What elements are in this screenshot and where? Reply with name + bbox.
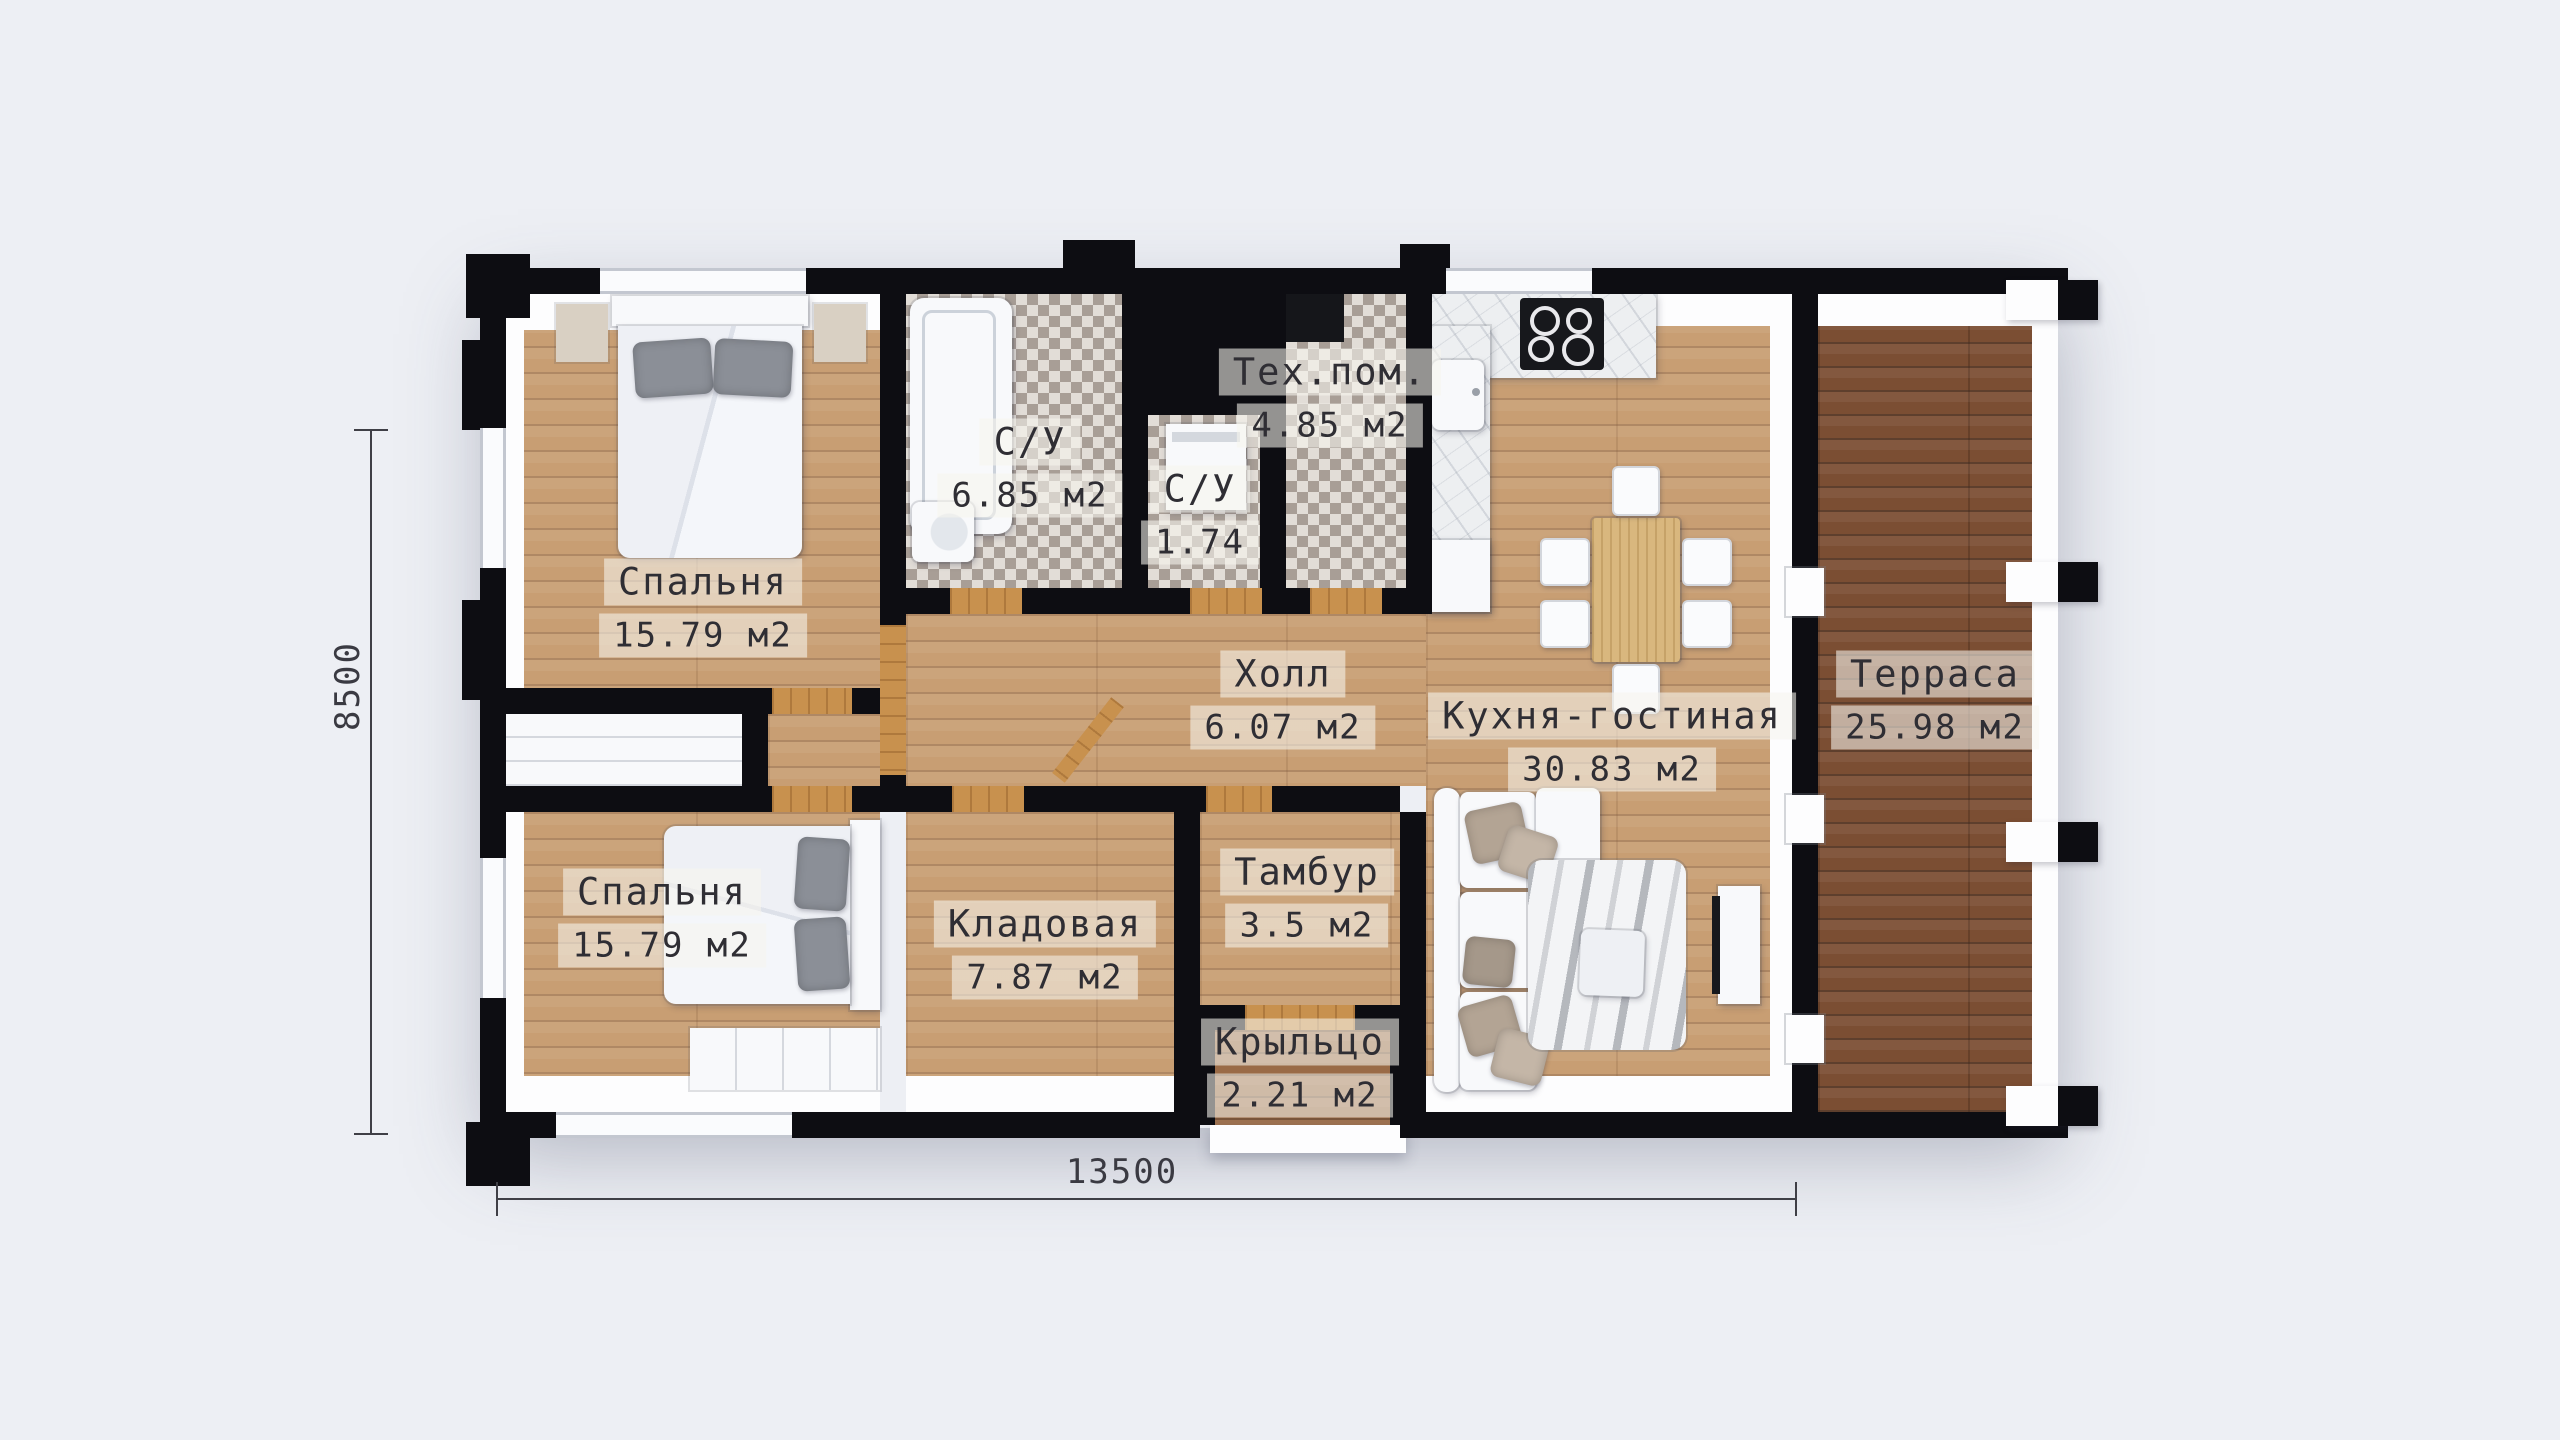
wall-bath-belt xyxy=(906,588,950,614)
door-vestibule xyxy=(1206,786,1272,812)
wall-wardrobe-stub xyxy=(742,714,768,786)
bed-1-pillow-left xyxy=(632,337,714,398)
room-area: 30.83 м2 xyxy=(1508,748,1716,792)
door-bedroom-2 xyxy=(772,786,852,812)
room-name: Тамбур xyxy=(1220,849,1394,896)
bedroom-1-left-wall-face xyxy=(506,330,524,688)
wardrobe xyxy=(506,714,742,786)
room-label-tech-room: Тех.пом. 4.85 м2 xyxy=(1219,349,1441,448)
dining-chair xyxy=(1540,538,1590,586)
room-area: 15.79 м2 xyxy=(558,924,766,968)
burner-icon xyxy=(1566,308,1592,334)
glass-door-living-terrace xyxy=(1786,1015,1824,1063)
door-tech-room xyxy=(1310,588,1382,614)
window-kitchen-top xyxy=(1446,268,1592,294)
glass-door-living-terrace xyxy=(1786,795,1824,843)
corner-block-top-left xyxy=(466,254,530,318)
room-name: Холл xyxy=(1220,651,1345,698)
bed-1 xyxy=(612,296,808,562)
room-area: 3.5 м2 xyxy=(1226,904,1389,948)
faucet-icon xyxy=(1472,388,1480,396)
room-label-hall: Холл 6.07 м2 xyxy=(1190,651,1375,750)
door-bathroom-2 xyxy=(1190,588,1262,614)
dimension-line-horizontal xyxy=(497,1198,1797,1200)
left-pilaster xyxy=(462,600,480,700)
cooktop xyxy=(1520,298,1604,370)
room-label-bedroom-1: Спальня 15.79 м2 xyxy=(599,559,807,658)
terrace-pillar-cap xyxy=(2058,562,2098,602)
dimension-tick xyxy=(496,1182,498,1216)
door-bathroom-1 xyxy=(950,588,1022,614)
room-name: Кухня-гостиная xyxy=(1428,693,1796,740)
room-label-bathroom-1: С/У 6.85 м2 xyxy=(937,419,1122,518)
dimension-line-vertical xyxy=(370,430,372,1135)
floor-plan-canvas: Спальня 15.79 м2 С/У 6.85 м2 С/У 1.74 Те… xyxy=(0,0,2560,1440)
dining-chair xyxy=(1612,466,1660,516)
room-name: Спальня xyxy=(563,869,761,916)
room-label-porch: Крыльцо 2.21 м2 xyxy=(1201,1019,1399,1118)
wall-bath-belt xyxy=(1022,588,1190,614)
terrace-pillar-cap xyxy=(2058,822,2098,862)
bed-2-pillow-bottom xyxy=(794,916,851,991)
dimension-width-label: 13500 xyxy=(1066,1152,1178,1192)
room-label-bathroom-2: С/У 1.74 xyxy=(1141,466,1259,565)
room-area: 7.87 м2 xyxy=(952,956,1137,1000)
room-name: Кладовая xyxy=(934,901,1156,948)
room-area: 6.85 м2 xyxy=(937,474,1122,518)
wall-left-middle xyxy=(480,568,506,858)
wall-storage-right xyxy=(1174,812,1200,1112)
dimension-tick xyxy=(354,429,388,431)
dresser xyxy=(690,1028,880,1090)
left-pilaster xyxy=(462,340,480,430)
nightstand-left xyxy=(556,304,608,362)
dimension-height-label: 8500 xyxy=(328,641,368,731)
corridor-floor xyxy=(768,714,880,786)
terrace-pillar-cap xyxy=(2058,280,2098,320)
bed-2-pillow-top xyxy=(794,836,851,911)
room-name: Терраса xyxy=(1836,651,2034,698)
room-name: Крыльцо xyxy=(1201,1019,1399,1066)
room-label-kitchen-living: Кухня-гостиная 30.83 м2 xyxy=(1428,693,1796,792)
door-bedroom-1 xyxy=(772,688,852,714)
window-bedroom-1-top xyxy=(600,268,806,294)
roof-vent-tab xyxy=(1063,240,1135,268)
wall-hall-belt xyxy=(880,786,952,812)
roof-vent-tab xyxy=(1400,244,1450,268)
bedroom-2-left-wall-face xyxy=(506,812,524,1076)
terrace-pillar-cap xyxy=(2058,1086,2098,1126)
room-label-terrace: Терраса 25.98 м2 xyxy=(1831,651,2039,750)
room-label-vestibule: Тамбур 3.5 м2 xyxy=(1220,849,1394,948)
dimension-tick xyxy=(354,1133,388,1135)
pouf xyxy=(1579,929,1645,997)
tv-console xyxy=(1718,886,1760,1004)
room-name: Тех.пом. xyxy=(1219,349,1441,396)
window-bedroom-1-left xyxy=(480,428,506,568)
wall-left-lower xyxy=(480,998,506,1138)
burner-icon xyxy=(1528,336,1554,362)
sofa-back xyxy=(1434,788,1460,1092)
porch-step xyxy=(1210,1125,1406,1153)
wall-bottom-right xyxy=(1405,1112,2068,1138)
bed-1-pillow-right xyxy=(713,338,794,398)
window-bedroom-2-bottom xyxy=(556,1112,792,1138)
room-area: 4.85 м2 xyxy=(1237,404,1422,448)
dining-chair xyxy=(1682,600,1732,648)
room-area: 1.74 xyxy=(1141,521,1259,565)
room-area: 15.79 м2 xyxy=(599,614,807,658)
room-name: С/У xyxy=(1150,466,1251,513)
door-storage xyxy=(952,786,1024,812)
room-name: Спальня xyxy=(604,559,802,606)
window-bedroom-2-left xyxy=(480,858,506,998)
room-area: 25.98 м2 xyxy=(1831,706,2039,750)
kitchen-lower-cabinet xyxy=(1426,540,1490,612)
dining-chair xyxy=(1540,600,1590,648)
room-label-storage: Кладовая 7.87 м2 xyxy=(934,901,1156,1000)
corner-block-bottom-left xyxy=(466,1122,530,1186)
wall-tech-right xyxy=(1406,294,1432,614)
bed-1-headboard xyxy=(612,296,808,326)
room-label-bedroom-2: Спальня 15.79 м2 xyxy=(558,869,766,968)
tv-screen xyxy=(1712,896,1720,994)
glass-door-living-terrace xyxy=(1786,568,1824,616)
wall-hall-belt xyxy=(1272,786,1400,812)
boiler xyxy=(1286,294,1344,342)
room-area: 2.21 м2 xyxy=(1207,1074,1392,1118)
burner-icon xyxy=(1562,334,1594,366)
sofa-pillow xyxy=(1462,936,1517,989)
nightstand-right xyxy=(814,304,866,362)
storage-bottom-wall-face xyxy=(906,1076,1174,1112)
door-corridor xyxy=(880,625,906,775)
burner-icon xyxy=(1530,306,1560,336)
wall-hall-belt xyxy=(1024,786,1206,812)
room-name: С/У xyxy=(980,419,1081,466)
room-area: 6.07 м2 xyxy=(1190,706,1375,750)
dimension-tick xyxy=(1795,1182,1797,1216)
bed-2-headboard xyxy=(850,820,880,1010)
dining-table xyxy=(1592,518,1680,662)
dining-chair xyxy=(1682,538,1732,586)
